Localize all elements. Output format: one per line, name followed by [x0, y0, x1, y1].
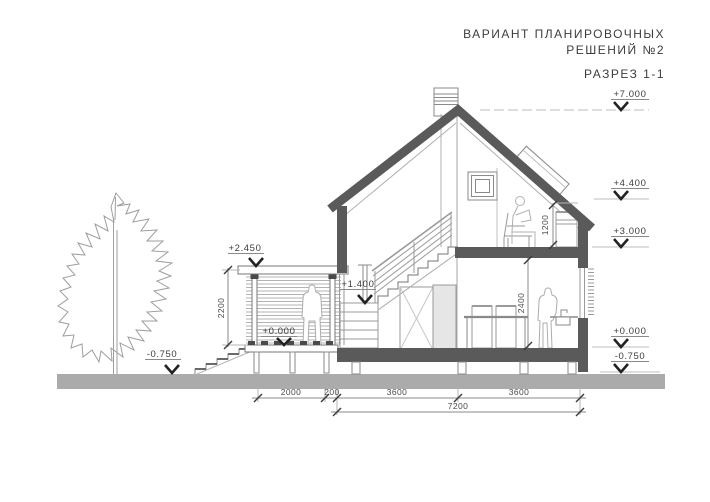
sheet-title-line2: РЕШЕНИЙ №2	[566, 42, 665, 57]
right-wall-lower	[578, 318, 588, 372]
sheet-title-line1: ВАРИАНТ ПЛАНИРОВОЧНЫХ	[463, 27, 665, 41]
dim-knee-wall: 1200	[540, 215, 550, 236]
elevation-mark-n0750-left: -0.750	[145, 349, 181, 373]
exterior-stairs	[195, 345, 252, 374]
dim-terrace-width: 2000	[281, 387, 302, 397]
elevation-arrow-icon	[358, 295, 372, 303]
level-text: +0.000	[263, 326, 296, 337]
level-text: -0.750	[147, 349, 178, 360]
dim-bay-2: 3600	[509, 387, 530, 397]
title-block: ВАРИАНТ ПЛАНИРОВОЧНЫХ РЕШЕНИЙ №2 РАЗРЕЗ …	[463, 27, 665, 81]
elevation-mark-p3000: +3.000	[611, 226, 649, 247]
roof-inner-line	[339, 123, 456, 220]
level-text: -0.750	[615, 351, 646, 362]
dim-terrace-height: 2200	[216, 298, 226, 319]
tree-trunk-center	[115, 197, 116, 220]
terrace-post	[330, 274, 335, 345]
dim-bay-1: 3600	[387, 387, 408, 397]
deck-post	[290, 352, 295, 373]
terrace-post-cap	[329, 274, 337, 279]
stair-lower-flight	[340, 265, 378, 348]
flue-cabinet	[433, 285, 456, 350]
kitchen-chairs	[472, 306, 516, 348]
understair-closet	[400, 285, 456, 350]
elevation-arrow-icon	[614, 191, 628, 199]
deck-post	[254, 352, 259, 373]
window-square	[468, 172, 497, 200]
level-text: +3.000	[614, 226, 647, 237]
terrace-roof-beam	[238, 266, 348, 274]
standing-person-kitchen	[538, 288, 557, 348]
right-wall-window	[580, 268, 585, 318]
level-text: +7.000	[614, 89, 647, 100]
elevation-arrow-icon	[614, 102, 628, 110]
elevation-mark-n0750-right: -0.750	[611, 351, 649, 372]
elevation-mark-p7000: +7.000	[611, 89, 649, 110]
level-text: +4.400	[614, 178, 647, 189]
dim-room-height: 2400	[516, 293, 526, 314]
elevation-mark-p1400: +1.400	[340, 279, 376, 303]
floor-slab-ground	[337, 348, 588, 362]
elevation-mark-p2450: +2.450	[228, 243, 264, 266]
dim-row-bottom	[252, 394, 586, 402]
house-section	[330, 88, 594, 374]
drawing-sheet: ВАРИАНТ ПЛАНИРОВОЧНЫХ РЕШЕНИЙ №2 РАЗРЕЗ …	[0, 0, 710, 502]
left-wall	[337, 206, 347, 273]
elevation-arrow-icon	[249, 258, 263, 266]
terrace	[238, 266, 348, 373]
level-text: +2.450	[229, 243, 262, 254]
elevation-mark-p4400: +4.400	[611, 178, 649, 199]
dim-total-width: 7200	[448, 401, 469, 411]
elevation-arrow-icon	[614, 339, 628, 347]
right-wall-hatch	[588, 269, 594, 315]
terrace-deck	[245, 341, 338, 373]
elevation-arrow-icon	[614, 239, 628, 247]
level-text: +1.400	[342, 279, 375, 290]
floor-slab-second	[455, 247, 588, 258]
ground	[57, 374, 665, 389]
level-text: +0.000	[614, 326, 647, 337]
elevation-mark-p0000-right: +0.000	[611, 326, 649, 347]
elevation-arrow-icon	[165, 365, 179, 373]
elevation-arrow-icon	[614, 364, 628, 372]
terrace-post	[252, 274, 257, 345]
tree	[58, 193, 172, 374]
terrace-post-cap	[251, 274, 259, 279]
dim-wall-gap: 200	[324, 387, 339, 397]
sitting-person	[512, 197, 535, 248]
view-label: РАЗРЕЗ 1-1	[584, 67, 665, 81]
deck-post	[324, 352, 329, 373]
foundation-posts	[352, 362, 576, 374]
